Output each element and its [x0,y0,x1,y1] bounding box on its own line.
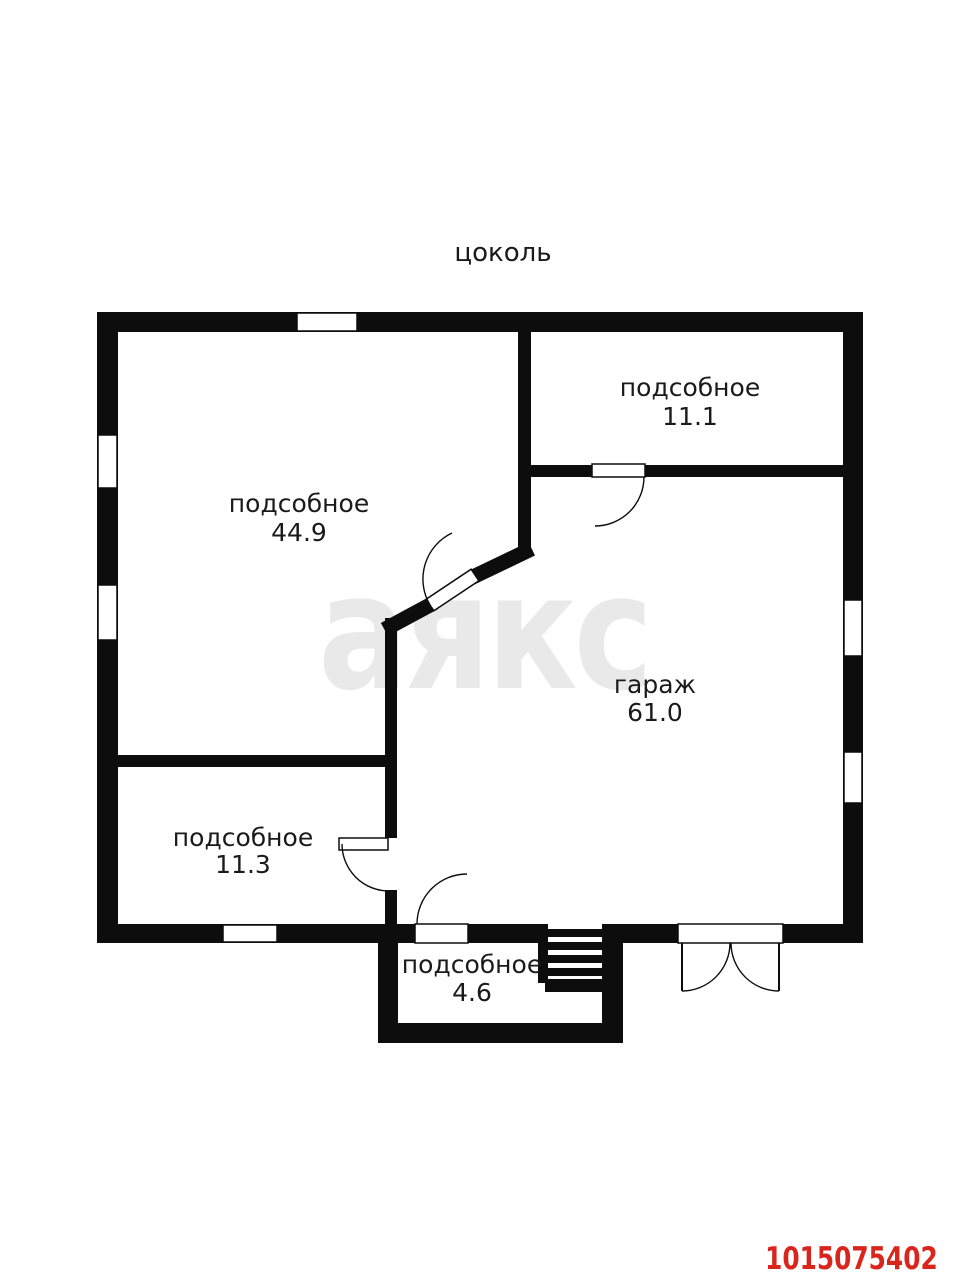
wall-111-garage-right [645,465,843,477]
stair-tread [548,942,603,950]
door-swing-arc [595,477,644,526]
room-area: 44.9 [271,518,327,547]
floor-title: цоколь [454,238,551,268]
stairs [548,929,603,976]
stair-tread [548,968,603,976]
room-area: 4.6 [452,978,492,1007]
window-bottom-wall [223,925,277,942]
window-left-wall-lower [98,585,117,640]
gate-swing-arc-left [682,943,730,991]
room-label-449: подсобное 44.9 [229,489,369,547]
wall-113-garage-lower [385,890,397,924]
wall-diagonal-upper [477,552,525,575]
floorplan-page: аякс цоколь [0,0,960,1280]
stair-tread [548,955,603,963]
room-name: подсобное [402,950,542,979]
room-name: подсобное [173,823,313,852]
room-area: 11.1 [662,402,718,431]
garage-gate [678,924,783,991]
window-right-wall-upper [844,600,862,656]
window-left-wall-upper [98,435,117,488]
listing-id-badge: 1015075402 [765,1244,938,1275]
door-leaf [426,569,479,611]
wall-111-garage-left [531,465,592,477]
room-label-46: подсобное 4.6 [402,950,542,1007]
wall-exterior-bottom-left [97,924,548,943]
room-label-garage: гараж 61.0 [614,670,696,727]
gate-swing-arc-right [731,943,779,991]
stair-tread [548,929,603,937]
door-diagonal-449 [423,533,479,611]
window-right-wall-lower [844,752,862,803]
door-46 [415,874,468,943]
room-area: 61.0 [627,698,683,727]
door-swing-arc [342,844,389,891]
door-leaf [339,838,388,850]
gate-opening [678,924,783,943]
door-leaf [415,924,468,943]
wall-stairs-bottom [545,979,623,992]
door-swing-arc [417,874,467,924]
room-area: 11.3 [215,850,271,879]
wall-annex-bottom [378,1023,623,1043]
wall-between-449-and-113 [118,755,397,767]
door-leaf [592,464,645,477]
room-name: подсобное [229,489,369,518]
wall-113-garage-upper [385,618,397,838]
door-113 [339,838,389,891]
window-top-wall [297,313,357,331]
room-name: гараж [614,670,696,699]
wall-between-449-and-111 [518,332,531,555]
room-name: подсобное [620,373,760,402]
floorplan-drawing: цоколь [0,0,960,1280]
room-label-113: подсобное 11.3 [173,823,313,879]
wall-exterior-top [97,312,863,332]
room-label-111: подсобное 11.1 [620,373,760,431]
door-111 [592,464,645,526]
